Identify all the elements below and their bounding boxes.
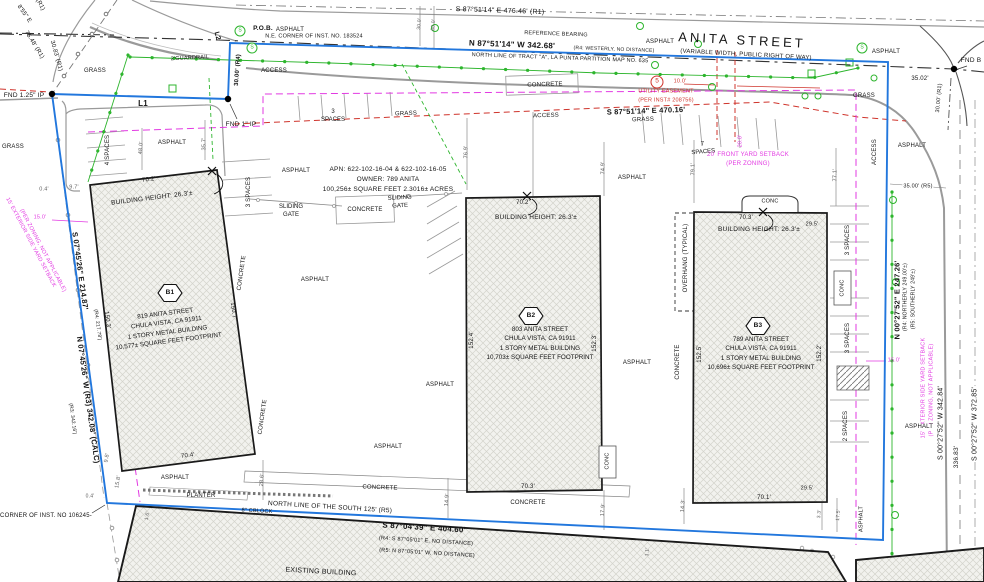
dim-143: 14.3' — [681, 499, 688, 512]
grass-label: GRASS — [84, 68, 106, 74]
dim-179: 17.9' — [601, 503, 608, 516]
east-bearing-1-note2: (R5: SOUTHERLY 249'±) — [912, 269, 917, 329]
parking-3-spaces: 3 SPACES — [246, 177, 252, 208]
dim-771: 77.1' — [833, 169, 839, 182]
site-plan-canvas — [0, 0, 984, 582]
b3-type: 1 STORY METAL BUILDING — [708, 354, 815, 363]
sewer-icon: S — [247, 43, 258, 54]
grass-label: GRASS — [632, 117, 654, 124]
east-bearing-1-note1: (R4: NORTHERLY 249.00'±) — [904, 263, 909, 331]
parking-count: 3 — [321, 109, 345, 117]
asphalt-label: ASPHALT — [618, 175, 646, 181]
easement-name: UTILITY EASEMENT — [638, 89, 693, 95]
conc-label: CONC — [605, 453, 611, 470]
fnd-b-point — [951, 66, 957, 72]
east-33683: 336.83' — [954, 445, 961, 470]
b3-dim-295-bottom: 29.5' — [801, 486, 814, 492]
b3-height: BUILDING HEIGHT: 26.3'± — [718, 227, 800, 234]
parking-2-spaces: 2 SPACES — [843, 411, 849, 442]
asphalt-label: ASPHALT — [623, 360, 651, 366]
site-survey-plan: S 87°51'14" E 476.46' (R1) REFERENCE BEA… — [0, 0, 984, 582]
b3-dim-left: 152.5' — [697, 345, 703, 362]
dim-97: 9.7' — [69, 185, 79, 191]
east-side-setback-dim: 15.0' — [888, 358, 901, 364]
existing-building-2 — [856, 548, 984, 582]
parking-3-spaces: 3 SPACES — [845, 323, 851, 354]
access-label: ACCESS — [261, 68, 287, 74]
corner-inst-label: CORNER OF INST. NO 106245- — [0, 513, 92, 519]
pob-label: P.O.B. — [253, 26, 273, 33]
access-label: ACCESS — [533, 113, 559, 120]
asphalt-label: ASPHALT — [301, 277, 329, 283]
grass-label: GRASS — [2, 144, 24, 150]
front-setback: 20' FRONT YARD SETBACK — [707, 152, 789, 158]
access-label: ACCESS — [872, 139, 878, 165]
easement-number-badge: 5 — [651, 76, 664, 89]
b2-height: BUILDING HEIGHT: 26.3'± — [495, 215, 577, 222]
dim-04: 0.4' — [39, 187, 49, 193]
asphalt-label: ASPHALT — [898, 143, 926, 149]
dim-600: 60.0' — [431, 19, 437, 31]
dim-286: 28.6' — [260, 473, 267, 486]
conc-label: CONC — [762, 199, 779, 205]
east-bearing-1: N 00°27'52" E 247.26' — [893, 261, 901, 340]
fnd-125-ip-label: FND 1.25" IP — [4, 93, 44, 100]
parcel-owner: OWNER: 789 ANITA — [357, 177, 420, 184]
dim-11: 1.1' — [645, 547, 651, 556]
grass-label: GRASS — [395, 111, 417, 118]
dim-175: 17.5' — [836, 509, 842, 521]
b2-footprint: 10,703± SQUARE FEET FOOTPRINT — [487, 353, 594, 362]
gate-word-1: SLIDING — [279, 204, 303, 212]
concrete-label: CONCRETE — [362, 484, 397, 491]
dim-480: 48.0' — [139, 141, 146, 154]
b2-badge-label: B2 — [527, 313, 536, 320]
asphalt-label: ASPHALT — [426, 382, 454, 388]
b3-address: 789 ANITA STREET — [708, 335, 815, 344]
sliding-gate-label: SLIDING GATE — [388, 195, 413, 212]
gate-word-2: GATE — [279, 212, 303, 220]
concrete-label: CONCRETE — [347, 207, 382, 213]
east-bearing-2: S 00°27'52" W 342.84' — [938, 385, 945, 461]
asphalt-label: ASPHALT — [859, 506, 865, 532]
asphalt-label: ASPHALT — [646, 39, 674, 45]
dim-33: 3.3' — [817, 509, 823, 518]
parking-7-spaces-stacked: 7 SPACES — [690, 140, 715, 158]
b3-address-block: 789 ANITA STREET CHULA VISTA, CA 91911 1… — [708, 335, 815, 373]
sewer-icon: S — [235, 26, 246, 37]
fnd-b-label: FND B — [961, 58, 982, 65]
b2-city: CHULA VISTA, CA 91911 — [487, 335, 594, 344]
b3-city: CHULA VISTA, CA 91911 — [708, 345, 815, 354]
asphalt-label: ASPHALT — [374, 444, 402, 450]
dim-04: 0.4' — [86, 495, 95, 500]
b2-dim-top: 70.2' — [516, 200, 530, 206]
parking-word: SPACES — [321, 117, 345, 125]
existing-building — [118, 506, 846, 582]
b3-footprint: 10,696± SQUARE FEET FOOTPRINT — [708, 363, 815, 372]
fnd-125-ip-point — [49, 91, 55, 97]
west-side-setback-dim: 15.0' — [34, 215, 47, 221]
concrete-label: CONCRETE — [675, 344, 681, 379]
concrete-label: CONCRETE — [510, 500, 545, 506]
planter-label: PLANTER — [186, 493, 215, 499]
b2-type: 1 STORY METAL BUILDING — [487, 344, 594, 353]
parcel-apn: APN: 622-102-16-04 & 622-102-16-05 — [329, 167, 446, 174]
b2-address: 803 ANITA STREET — [487, 325, 594, 334]
front-setback-dim: 20.0' — [738, 135, 744, 148]
east-side-setback-note: (PER ZONING, NOT APPLICABLE) — [929, 344, 935, 437]
conc-label: CONC — [840, 280, 846, 297]
asphalt-label: ASPHALT — [282, 168, 310, 174]
dim-3500-r5: 35.00' (R5) — [902, 184, 933, 190]
building-badges — [158, 285, 770, 335]
parking-4-spaces: 4 SPACES — [105, 135, 111, 166]
pob-note: N.E. CORNER OF INST. NO. 183524 — [265, 34, 363, 40]
dim-791: 79.1' — [691, 163, 697, 176]
b3-dim-right: 152.2' — [817, 344, 823, 361]
b3-dim-bottom: 70.1' — [757, 495, 771, 501]
b3-dim-top: 70.3' — [739, 215, 753, 221]
grass-label: GRASS — [853, 93, 875, 99]
asphalt-label: ASPHALT — [158, 140, 186, 146]
easement-note: (PER INST# 208756) — [638, 98, 694, 104]
concrete-label: CONCRETE — [527, 81, 562, 88]
b1-badge-label: B1 — [166, 290, 175, 297]
dim-749: 74.9' — [601, 162, 607, 175]
asphalt-label: ASPHALT — [161, 475, 189, 481]
gate-word-2: GATE — [388, 202, 412, 211]
b2-dim-bottom: 70.3' — [521, 484, 535, 490]
dim-149: 14.9' — [445, 493, 452, 506]
b3-badge-label: B3 — [754, 323, 763, 330]
parking-3-spaces-stacked: 3 SPACES — [321, 109, 345, 125]
dim-357: 35.7' — [202, 138, 208, 151]
fnd-1-ip-label: FND 1" IP — [226, 122, 257, 129]
fnd-1-ip-point — [225, 96, 231, 102]
sewer-icon: S — [857, 43, 868, 54]
overhang-label: OVERHANG (TYPICAL) — [683, 224, 689, 293]
l1-label: L1 — [138, 100, 148, 108]
asphalt-label: ASPHALT — [276, 27, 304, 33]
front-setback-note: (PER ZONING) — [726, 161, 770, 167]
b2-address-block: 803 ANITA STREET CHULA VISTA, CA 91911 1… — [487, 325, 594, 363]
dim-769: 76.9' — [464, 146, 470, 159]
dim-3502: 35.02' — [911, 76, 928, 82]
east-bearing-3: S 00°27'52" W 372.85' — [972, 386, 979, 462]
easement-width: 10.0' — [674, 79, 687, 85]
asphalt-label: ASPHALT — [904, 424, 934, 430]
parcel-area: 100,256± SQUARE FEET 2.3016± ACRES — [323, 187, 454, 194]
sliding-gate-label: SLIDING GATE — [279, 204, 303, 220]
dim-300: 30.0' — [417, 18, 423, 30]
b2-dim-left: 152.4' — [469, 331, 475, 348]
asphalt-label: ASPHALT — [872, 49, 900, 55]
b3-dim-295-top: 29.5' — [806, 222, 819, 228]
parking-3-spaces: 3 SPACES — [845, 225, 851, 256]
